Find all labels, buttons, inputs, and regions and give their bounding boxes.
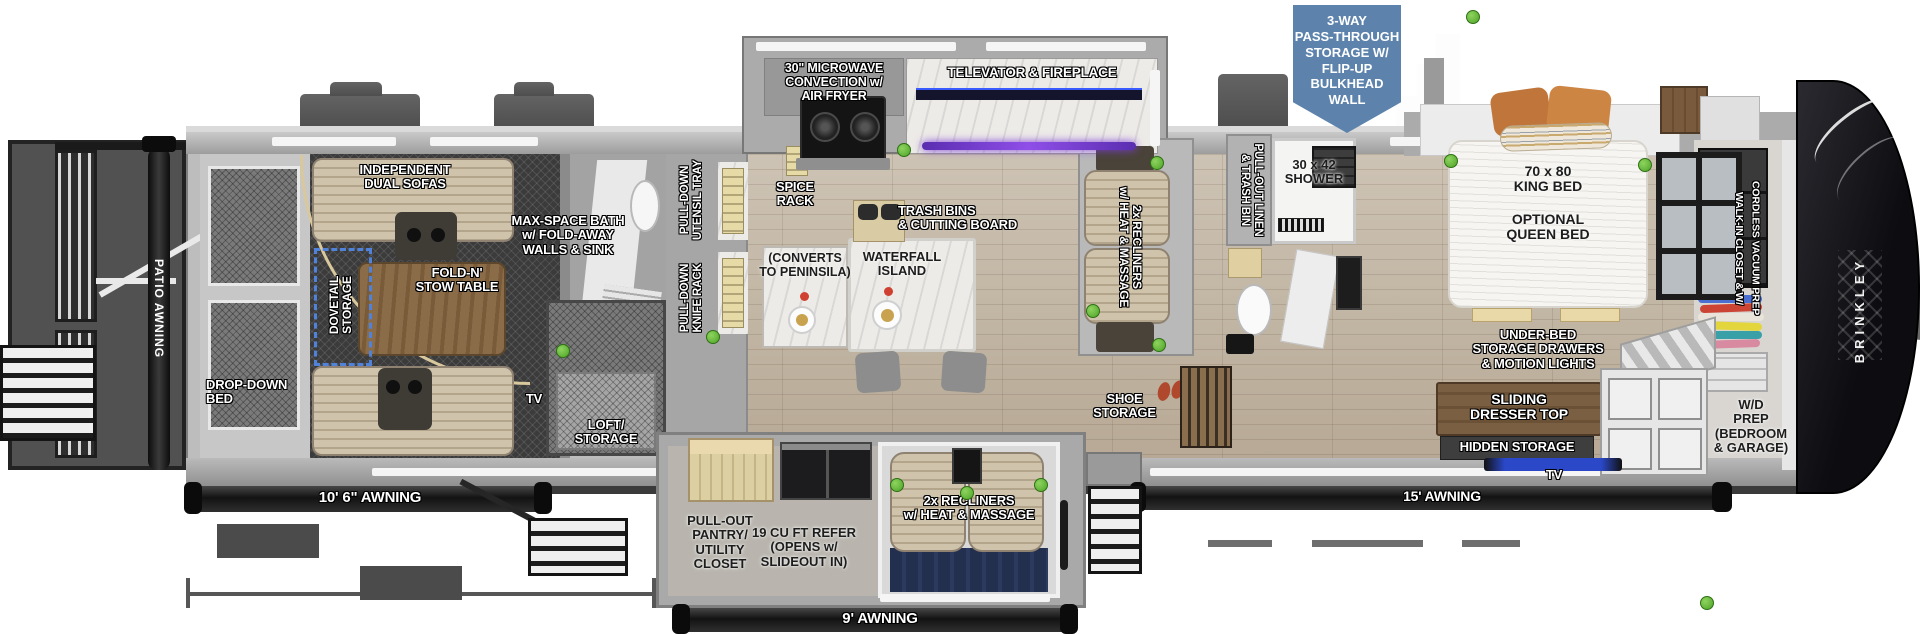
sofa-console xyxy=(378,368,432,430)
place-setting-tomato xyxy=(800,292,809,301)
pullout-pantry xyxy=(688,438,774,502)
patio-awning-pole-cap xyxy=(142,136,176,152)
dimension-tick xyxy=(186,578,190,608)
slide-indicator-dot xyxy=(1086,304,1100,318)
place-setting-tomato xyxy=(884,287,893,296)
max-space-bath-label: MAX-SPACE BATH w/ FOLD-AWAY WALLS & SINK xyxy=(498,214,638,257)
slide-indicator-dot xyxy=(1152,338,1166,352)
patio-railing-panel xyxy=(55,150,97,322)
shower-label: 30 x 42 SHOWER xyxy=(1276,158,1352,187)
loft-storage-label: LOFT/ STORAGE xyxy=(556,418,656,447)
window-strip xyxy=(880,594,1050,602)
toilet xyxy=(1236,284,1272,336)
slide-indicator-dot xyxy=(1444,154,1458,168)
linen-label: PULL-OUT LINEN & TRASH BIN xyxy=(1234,115,1264,265)
microwave-label: 30" MICROWAVE CONVECTION w/ AIR FRYER xyxy=(764,62,904,103)
slide-indicator-dot xyxy=(897,143,911,157)
cooktop xyxy=(800,96,886,162)
slide-indicator-dot xyxy=(706,330,720,344)
cooktop-front xyxy=(796,158,890,170)
brand-label: BRINKLEY xyxy=(1852,230,1872,390)
awning-end-cap xyxy=(1060,604,1078,634)
televator-tv xyxy=(916,88,1142,100)
right-awning-label: 15' AWNING xyxy=(1392,489,1492,504)
toilet-tank xyxy=(1226,334,1254,354)
awning-end-cap xyxy=(1712,482,1732,512)
televator-label: TELEVATOR & FIREPLACE xyxy=(912,66,1152,81)
slide-indicator-dot xyxy=(1466,10,1480,24)
fold-n-stow-label: FOLD-N' STOW TABLE xyxy=(398,266,516,295)
mid-entry-steps xyxy=(528,518,628,576)
trash-bins-label: TRASH BINS & CUTTING BOARD xyxy=(898,204,1018,233)
underbody-shadow xyxy=(1208,540,1272,547)
wd-prep-label: W/D PREP (BEDROOM & GARAGE) xyxy=(1708,398,1794,455)
garage-screen-panel xyxy=(208,166,300,286)
patio-steps xyxy=(0,345,96,441)
bedroom-tv-label: TV xyxy=(1534,468,1574,482)
king-bed-label: 70 x 80 KING BED xyxy=(1498,164,1598,195)
roof-ac-unit xyxy=(330,82,382,96)
recliners-label: 2x RECLINERS w/ HEAT & MASSAGE xyxy=(1111,160,1143,334)
bath-vanity-tv xyxy=(1336,256,1362,310)
window-strip xyxy=(1150,70,1160,146)
place-setting-plate xyxy=(788,306,816,334)
roof-ac-unit xyxy=(300,94,420,128)
roof-ac-unit xyxy=(494,94,594,128)
awning-end-cap xyxy=(534,482,552,514)
bed-pillow-striped xyxy=(1500,122,1613,152)
window-strip xyxy=(756,42,956,51)
hidden-storage-label: HIDDEN STORAGE xyxy=(1442,440,1592,454)
refer-label: 19 CU FT REFER (OPENS w/ SLIDEOUT IN) xyxy=(748,526,860,569)
dovetail-storage-label: DOVETAIL STORAGE xyxy=(328,250,354,360)
independent-sofas-label: INDEPENDENT DUAL SOFAS xyxy=(330,163,480,192)
slide-indicator-dot xyxy=(1700,596,1714,610)
utensil-tray xyxy=(722,168,744,234)
pass-through-callout: 3-WAY PASS-THROUGH STORAGE W/ FLIP-UP BU… xyxy=(1293,5,1401,133)
underbody-shadow xyxy=(1312,540,1423,547)
waterfall-island-label: WATERFALL ISLAND xyxy=(852,250,952,279)
window-strip xyxy=(272,137,396,146)
spice-rack-label: SPICE RACK xyxy=(760,180,830,209)
dimension-label-chip xyxy=(360,566,462,600)
slide-indicator-dot xyxy=(556,344,570,358)
converts-peninsula-label: (CONVERTS TO PENINSILA) xyxy=(758,252,852,280)
window-strip xyxy=(430,137,538,146)
rv-floorplan-diagram: PATIO AWNING DOVETAIL STORAGE INDEPENDEN… xyxy=(0,0,1920,634)
bed-base xyxy=(1472,308,1532,322)
garage-tv-label: TV xyxy=(516,392,552,406)
left-awning-label: 10' 6" AWNING xyxy=(250,490,490,507)
recliner-mat xyxy=(890,548,1048,592)
shower-grate xyxy=(1278,218,1324,232)
drop-down-bed-label: DROP-DOWN BED xyxy=(206,378,326,407)
awning-end-cap xyxy=(672,604,690,634)
slide-indicator-dot xyxy=(1150,156,1164,170)
fireplace-led xyxy=(922,142,1136,150)
underbody-shadow xyxy=(1462,540,1520,547)
place-setting-plate xyxy=(872,300,902,330)
slide-indicator-dot xyxy=(1638,158,1652,172)
entry-handrail xyxy=(1060,500,1068,570)
bed-base xyxy=(1560,308,1620,322)
bottom-awning-label: 9' AWNING xyxy=(800,611,960,628)
slide-indicator-dot xyxy=(960,486,974,500)
knife-rack-label: PULL-DOWN KNIFE RACK xyxy=(679,238,709,358)
queen-option-label: OPTIONAL QUEEN BED xyxy=(1494,212,1602,243)
island-chair xyxy=(941,351,988,394)
shoe-storage-label: SHOE STORAGE xyxy=(1082,392,1167,421)
patio-awning-label: PATIO AWNING xyxy=(148,148,170,470)
island-chair xyxy=(855,351,902,394)
garage-screen-panel xyxy=(208,300,300,430)
sofa-console xyxy=(395,212,457,260)
window-strip xyxy=(986,42,1146,51)
refrigerator xyxy=(780,442,872,500)
slide-indicator-dot xyxy=(890,478,904,492)
knife-rack xyxy=(722,258,744,328)
sliding-dresser-label: SLIDING DRESSER TOP xyxy=(1440,392,1598,423)
awning-end-cap xyxy=(184,482,202,514)
underbed-label: UNDER-BED STORAGE DRAWERS & MOTION LIGHT… xyxy=(1468,328,1608,371)
wardrobe-box xyxy=(1700,96,1760,146)
patio-awning-pole: PATIO AWNING xyxy=(148,148,170,470)
recliner-console xyxy=(952,448,982,484)
walk-in-closet-label: WALK-IN CLOSET & W/ CORDLESS VACUUM PREP xyxy=(1730,168,1774,328)
main-entry-steps xyxy=(1088,486,1142,574)
entry-doorway xyxy=(1086,452,1142,486)
underbody-shadow xyxy=(217,524,319,558)
bedroom-stairs xyxy=(1180,366,1232,448)
slide-indicator-dot xyxy=(1034,478,1048,492)
pass-through-callout-text: 3-WAY PASS-THROUGH STORAGE W/ FLIP-UP BU… xyxy=(1293,13,1401,108)
roof-ac-unit xyxy=(514,82,554,96)
